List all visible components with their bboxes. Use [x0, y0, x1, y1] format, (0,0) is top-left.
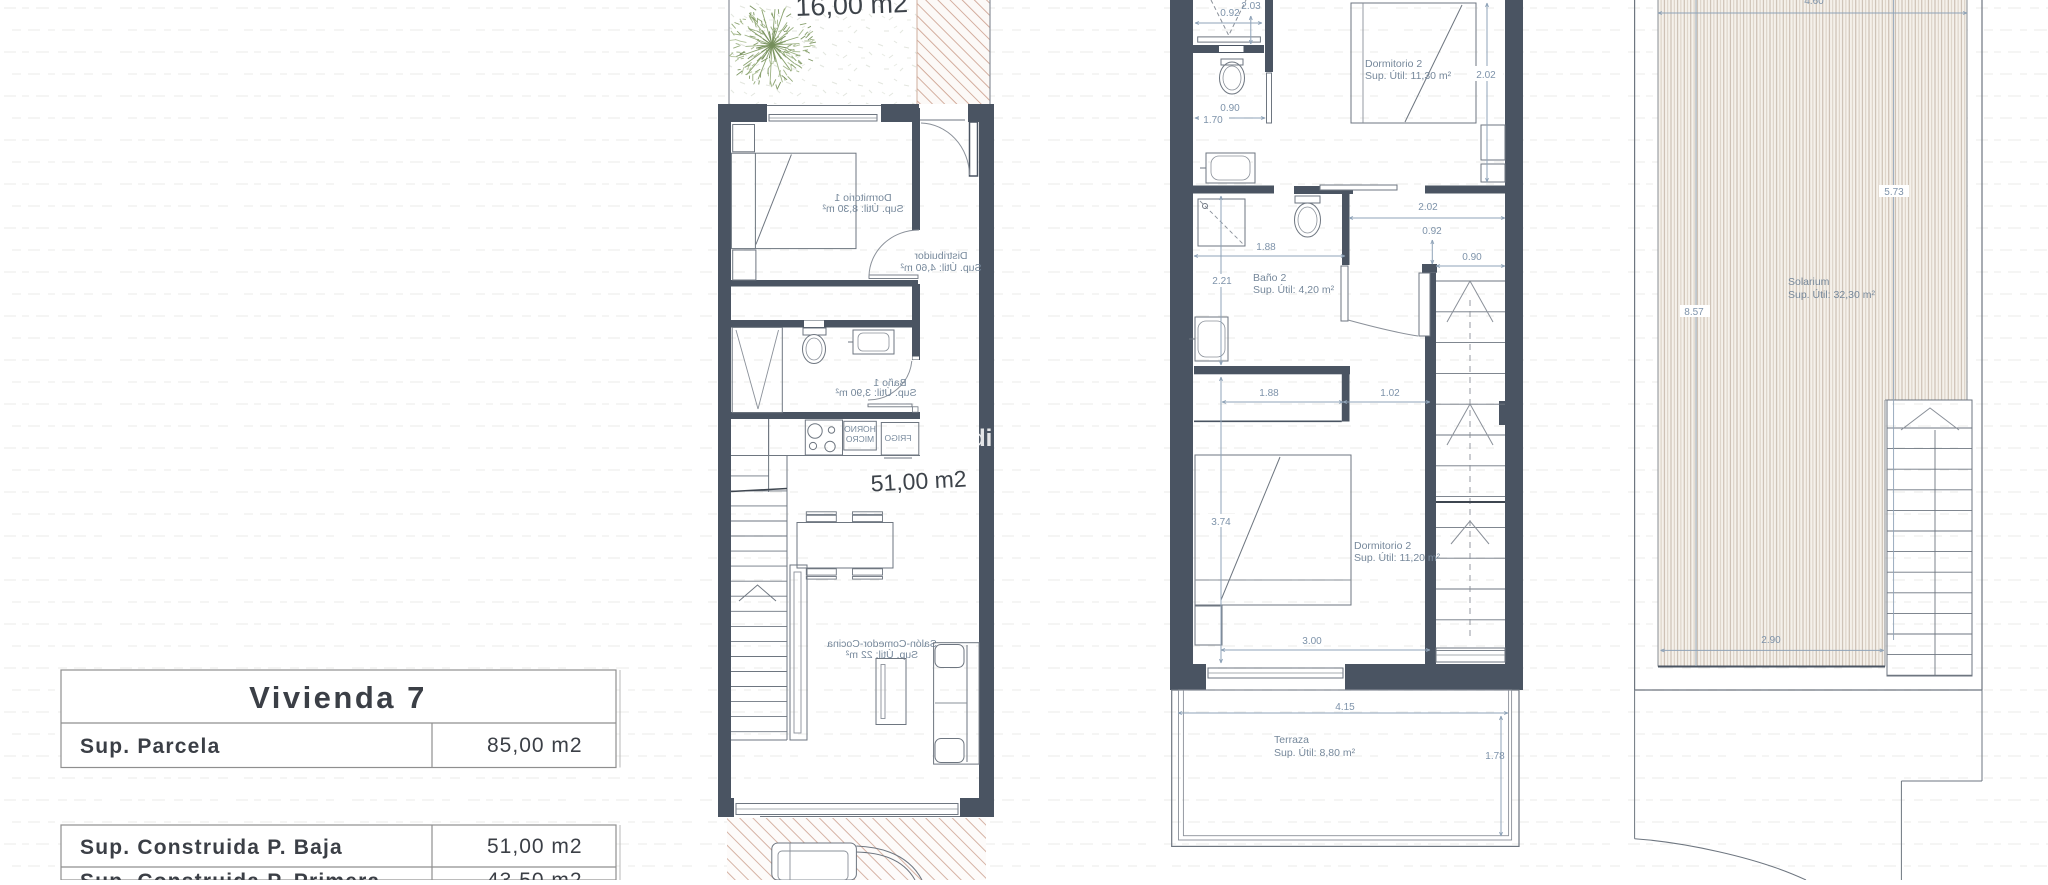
- svg-text:4.15: 4.15: [1335, 702, 1355, 713]
- svg-text:Baño 2: Baño 2: [1253, 272, 1286, 284]
- svg-text:1.88: 1.88: [1256, 242, 1276, 253]
- svg-text:Vivienda 7: Vivienda 7: [249, 680, 427, 715]
- svg-text:dim: dim: [971, 425, 1014, 452]
- svg-text:Sup. Útil: 32,30 m²: Sup. Útil: 32,30 m²: [1788, 288, 1875, 301]
- svg-text:Sup. Construida P. Baja: Sup. Construida P. Baja: [80, 836, 343, 859]
- svg-text:1.02: 1.02: [1380, 388, 1400, 399]
- svg-text:Sup. Útil: 3,90 m²: Sup. Útil: 3,90 m²: [835, 386, 917, 399]
- svg-text:1.88: 1.88: [1259, 388, 1279, 399]
- svg-text:2.03: 2.03: [1241, 1, 1261, 12]
- svg-text:43,50 m2: 43,50 m2: [487, 869, 583, 880]
- svg-text:Sup. Útil: 22 m²: Sup. Útil: 22 m²: [845, 648, 918, 661]
- svg-text:2.02: 2.02: [1418, 202, 1438, 213]
- svg-text:3.00: 3.00: [1302, 636, 1322, 647]
- svg-text:Sup. Construida P. Primera: Sup. Construida P. Primera: [80, 870, 380, 880]
- svg-text:8.57: 8.57: [1684, 307, 1704, 318]
- svg-text:Sup. Útil: 4,60 m²: Sup. Útil: 4,60 m²: [900, 261, 982, 274]
- svg-text:0.92: 0.92: [1220, 8, 1240, 19]
- svg-text:Sup. Útil: 11,30 m²: Sup. Útil: 11,30 m²: [1365, 69, 1452, 82]
- svg-text:0.90: 0.90: [1462, 252, 1482, 263]
- svg-text:MICRO: MICRO: [845, 434, 874, 444]
- svg-text:Solarium: Solarium: [1788, 276, 1830, 288]
- svg-text:Terraza: Terraza: [1274, 734, 1309, 746]
- svg-text:1.70: 1.70: [1203, 115, 1223, 126]
- svg-text:2.02: 2.02: [1476, 70, 1496, 81]
- svg-text:85,00 m2: 85,00 m2: [487, 734, 583, 757]
- svg-text:Sup. Útil: 8,30 m²: Sup. Útil: 8,30 m²: [822, 202, 904, 215]
- svg-text:Sup. Útil: 8,80 m²: Sup. Útil: 8,80 m²: [1274, 746, 1356, 759]
- svg-text:Distribuidor: Distribuidor: [914, 250, 968, 262]
- svg-text:51,00 m2: 51,00 m2: [487, 835, 583, 858]
- svg-text:Dormitorio 2: Dormitorio 2: [1365, 58, 1422, 70]
- svg-text:Sup. Parcela: Sup. Parcela: [80, 735, 220, 758]
- svg-text:51,00 m2: 51,00 m2: [870, 466, 967, 497]
- svg-text:Sup. Útil: 4,20 m²: Sup. Útil: 4,20 m²: [1253, 283, 1335, 296]
- svg-text:2.90: 2.90: [1761, 635, 1781, 646]
- svg-text:5.73: 5.73: [1884, 187, 1904, 198]
- svg-text:1.78: 1.78: [1485, 751, 1505, 762]
- svg-text:2.21: 2.21: [1212, 276, 1232, 287]
- svg-text:0.92: 0.92: [1422, 226, 1442, 237]
- svg-text:Dormitorio 2: Dormitorio 2: [1354, 540, 1411, 552]
- svg-text:4.60: 4.60: [1804, 0, 1824, 7]
- svg-text:HORNO: HORNO: [844, 424, 876, 434]
- svg-text:3.74: 3.74: [1211, 517, 1231, 528]
- svg-text:FRIGO: FRIGO: [884, 433, 911, 443]
- svg-text:Sup. Útil: 11,20 m²: Sup. Útil: 11,20 m²: [1354, 551, 1441, 564]
